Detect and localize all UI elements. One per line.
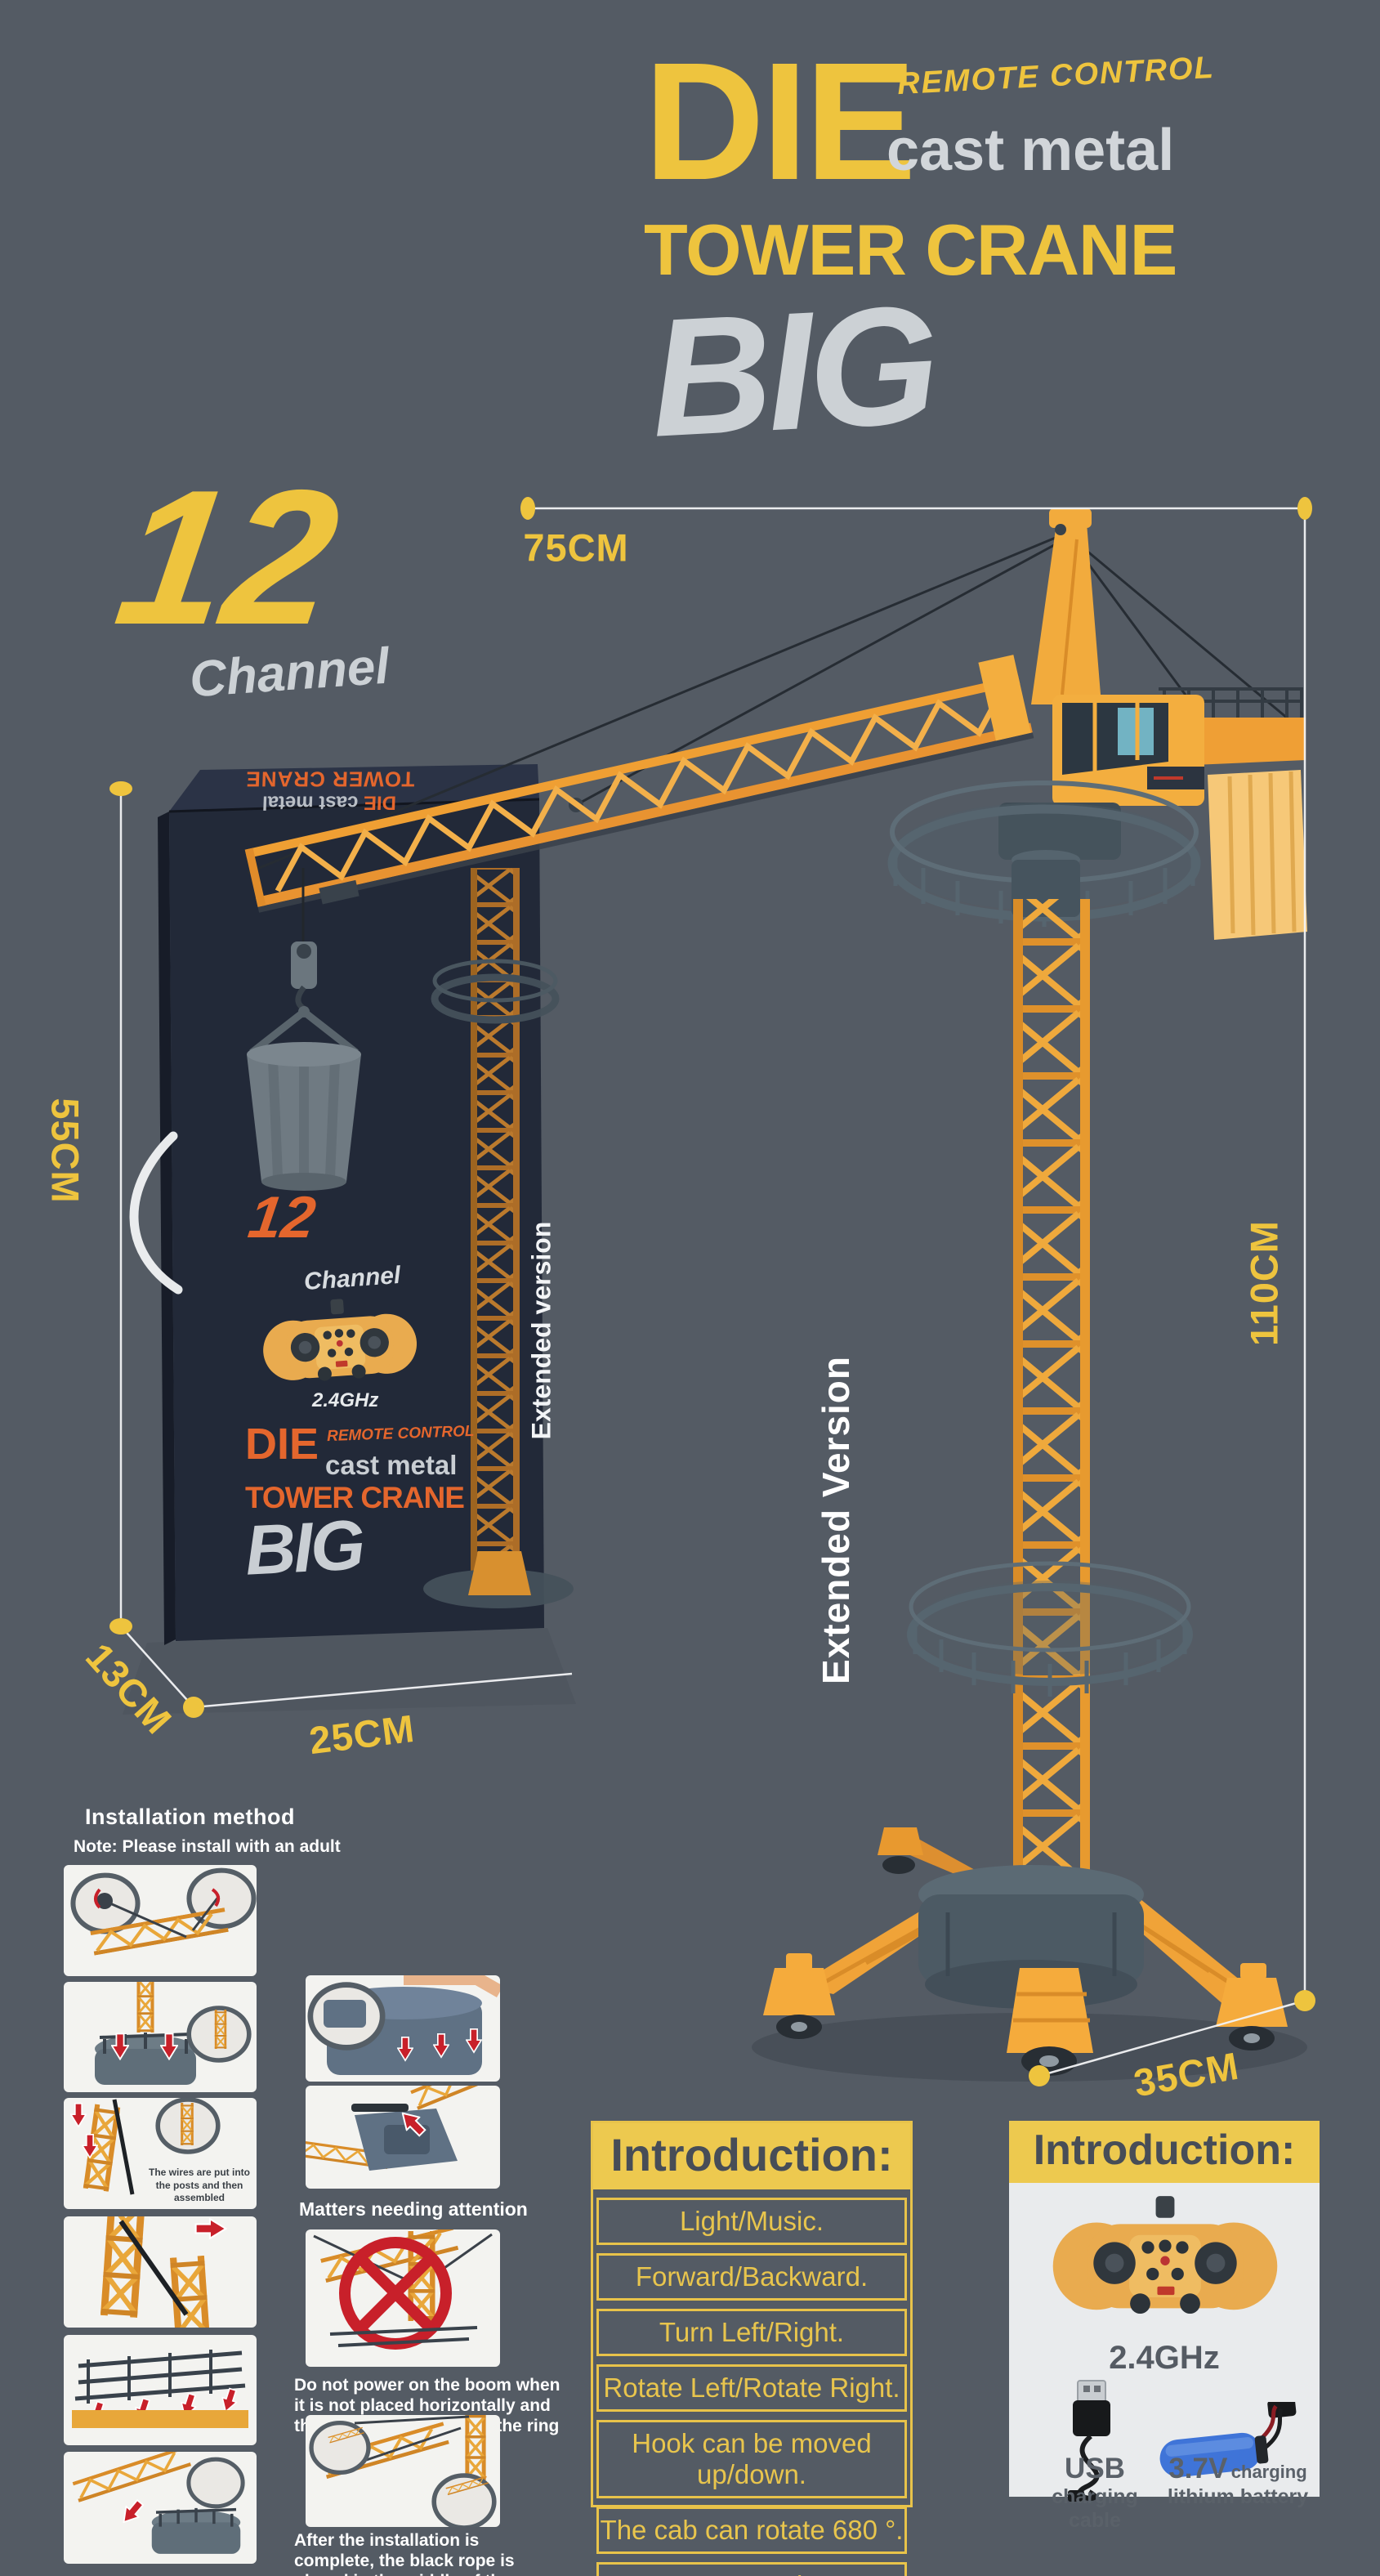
dim-jib-length: 75CM — [523, 525, 628, 570]
after-photo — [306, 2415, 500, 2527]
function-item: Programming demonstration. — [596, 2562, 907, 2576]
usb-label-small: charging cable — [1052, 2485, 1138, 2532]
install-step-photo-6 — [64, 2452, 257, 2564]
dim-crane-height: 110CM — [1242, 1220, 1287, 1346]
remote-controller-icon — [1048, 2194, 1282, 2335]
function-item: Turn Left/Right. — [596, 2309, 907, 2356]
function-item: Forward/Backward. — [596, 2253, 907, 2301]
introduction-accessories-box: Introduction: 2.4GHz — [1009, 2121, 1320, 2497]
install-step-photo-5 — [64, 2335, 257, 2445]
product-poster: DIE cast metal TOWER CRANE 12 Channel 2.… — [0, 0, 1380, 2576]
introduction-functions-box: Introduction: Light/Music. Forward/Backw… — [591, 2121, 913, 2507]
wires-caption: The wires are put into the posts and the… — [145, 2167, 253, 2205]
attention-photo-1 — [306, 1975, 500, 2082]
title-big: BIG — [647, 289, 938, 454]
matters-heading: Matters needing attention — [299, 2198, 528, 2220]
dim-box-height: 55CM — [43, 1098, 88, 1203]
battery-label: 3.7V charging lithium battery — [1164, 2453, 1311, 2509]
accessories-body: 2.4GHz USB charging — [1009, 2183, 1320, 2497]
title-die: DIE — [644, 38, 913, 205]
install-step-photo-1 — [64, 1865, 257, 1976]
introduction-accessories-header: Introduction: — [1009, 2121, 1320, 2183]
usb-label-big: USB — [1065, 2453, 1125, 2484]
attention-photo-2 — [306, 2086, 500, 2189]
accessories-frequency: 2.4GHz — [1009, 2340, 1320, 2377]
install-step-photo-4 — [64, 2216, 257, 2328]
battery-label-big: 3.7V — [1168, 2453, 1227, 2484]
battery-label-small: lithium battery — [1168, 2485, 1308, 2508]
warning-photo — [306, 2229, 500, 2367]
channel-logo-number: 12 — [109, 476, 346, 639]
function-item: Light/Music. — [596, 2198, 907, 2245]
install-step-photo-3: The wires are put into the posts and the… — [64, 2098, 257, 2209]
usb-label: USB charging cable — [1034, 2453, 1156, 2533]
installation-heading: Installation method — [85, 1805, 295, 1830]
install-step-photo-2 — [64, 1982, 257, 2092]
extended-version-label: Extended Version — [814, 1356, 858, 1684]
installation-note: Note: Please install with an adult — [74, 1837, 341, 1857]
title-cast-metal: cast metal — [887, 121, 1174, 180]
function-item: The cab can rotate 680 °. — [596, 2507, 907, 2554]
function-item: Hook can be moved up/down. — [596, 2420, 907, 2498]
after-text: After the installation is complete, the … — [294, 2530, 539, 2576]
function-item: Rotate Left/Rotate Right. — [596, 2364, 907, 2412]
battery-label-mid: charging — [1231, 2462, 1307, 2482]
introduction-functions-header: Introduction: — [593, 2123, 910, 2189]
